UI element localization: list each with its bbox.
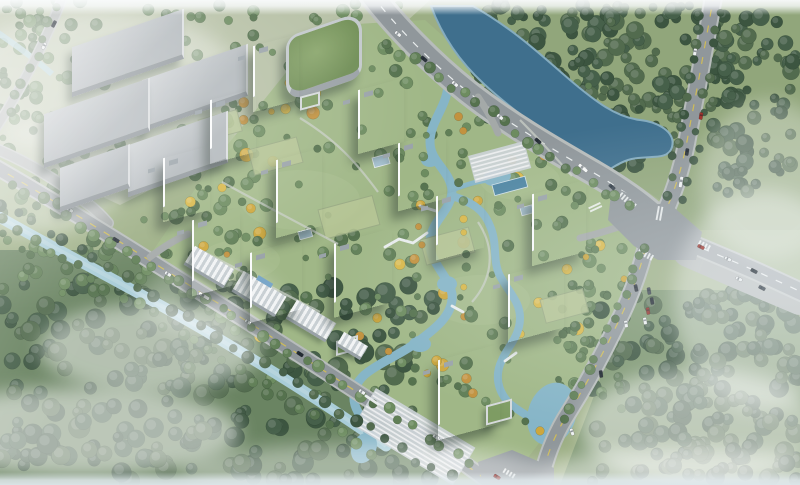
car <box>599 370 603 377</box>
aerial-render-canvas <box>0 0 800 485</box>
pond <box>437 276 457 292</box>
pond <box>409 336 431 352</box>
landscape-svg <box>0 0 800 485</box>
